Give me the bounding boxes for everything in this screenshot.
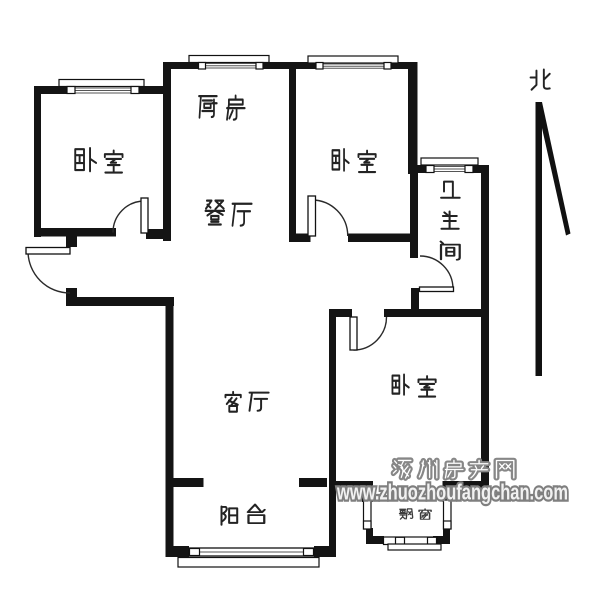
svg-text:www.zhuozhoufangchan.com: www.zhuozhoufangchan.com	[336, 480, 568, 505]
